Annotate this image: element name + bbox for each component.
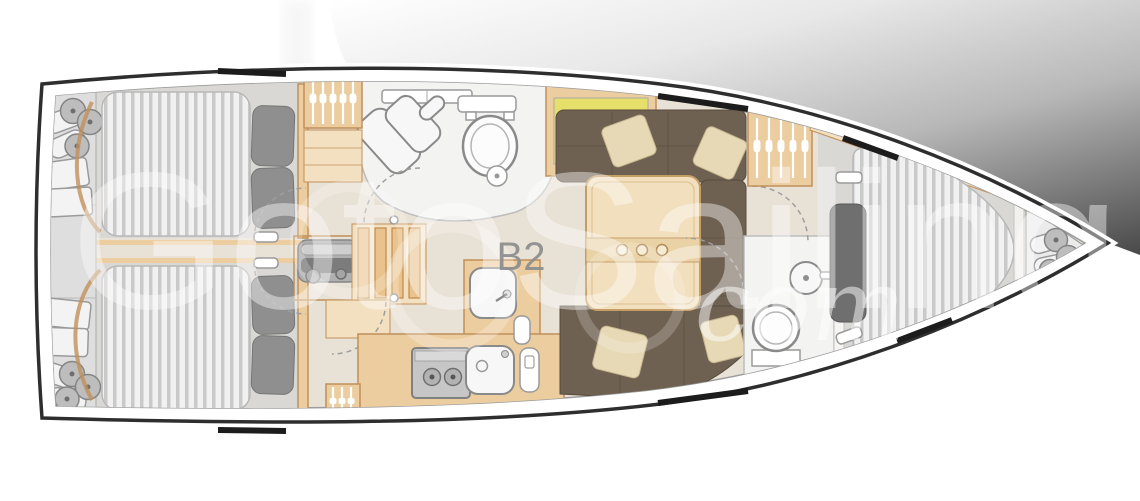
burner-center [451, 375, 456, 380]
faucet-icon [502, 351, 509, 358]
hull-hatch [218, 71, 286, 74]
toilet-hinge [504, 112, 514, 120]
yacht-floor-plan-page: GotoSailing com B2 [0, 0, 1140, 501]
tray [520, 348, 539, 392]
watermark-script-text: com [694, 247, 905, 364]
burner-center [430, 375, 435, 380]
toilet-tank [458, 96, 516, 112]
toilet-hinge [466, 112, 476, 120]
stove-panel [415, 351, 467, 361]
unit-label: B2 [497, 235, 546, 279]
hull-hatch [218, 430, 286, 431]
watermark-main-text: GotoSailing [70, 132, 1120, 350]
watermark: GotoSailing com [70, 132, 1120, 364]
yacht-floor-plan: GotoSailing com B2 [0, 0, 1140, 501]
